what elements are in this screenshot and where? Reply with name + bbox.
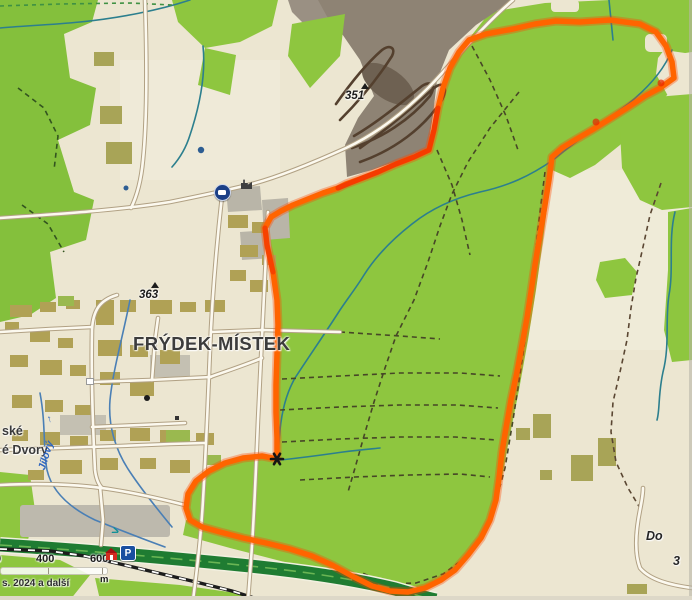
elevation-label: 363 bbox=[139, 289, 158, 301]
hut-icon[interactable] bbox=[105, 548, 118, 561]
small-building-icon bbox=[175, 416, 179, 420]
route-marker-dot bbox=[593, 119, 600, 126]
scale-bar bbox=[0, 567, 108, 575]
right-edge-number-partial: 3 bbox=[673, 554, 680, 568]
hut-door bbox=[110, 555, 113, 560]
pond bbox=[198, 147, 204, 153]
elevation-label: 351 bbox=[345, 90, 364, 102]
parking-icon[interactable]: P bbox=[120, 545, 136, 561]
pond bbox=[124, 186, 129, 191]
district-label-partial: ské bbox=[2, 424, 23, 438]
city-name-label: FRÝDEK-MÍSTEK bbox=[133, 333, 290, 355]
scale-unit-label: m bbox=[100, 574, 108, 585]
building-poi-icon bbox=[86, 378, 94, 385]
forest-right-strip bbox=[664, 208, 692, 362]
route-marker-dot bbox=[658, 80, 665, 87]
scan-edge-bottom bbox=[0, 596, 692, 600]
map-canvas[interactable]: FRÝDEK-MÍSTEK 363 351 ské é Dvory Jílový… bbox=[0, 0, 692, 600]
right-edge-label-partial: Do bbox=[646, 529, 663, 543]
bus-stop-icon[interactable] bbox=[214, 184, 231, 201]
monument-dot-icon bbox=[144, 395, 150, 401]
trig-point-icon bbox=[361, 83, 369, 89]
map-attribution: s. 2024 a další bbox=[2, 578, 69, 589]
bus-glyph bbox=[218, 190, 226, 195]
scale-tick-label: 0 bbox=[0, 553, 1, 565]
scale-tick-label: 400 bbox=[36, 553, 54, 565]
scale-tick bbox=[48, 568, 49, 574]
trig-point-icon bbox=[151, 282, 159, 288]
